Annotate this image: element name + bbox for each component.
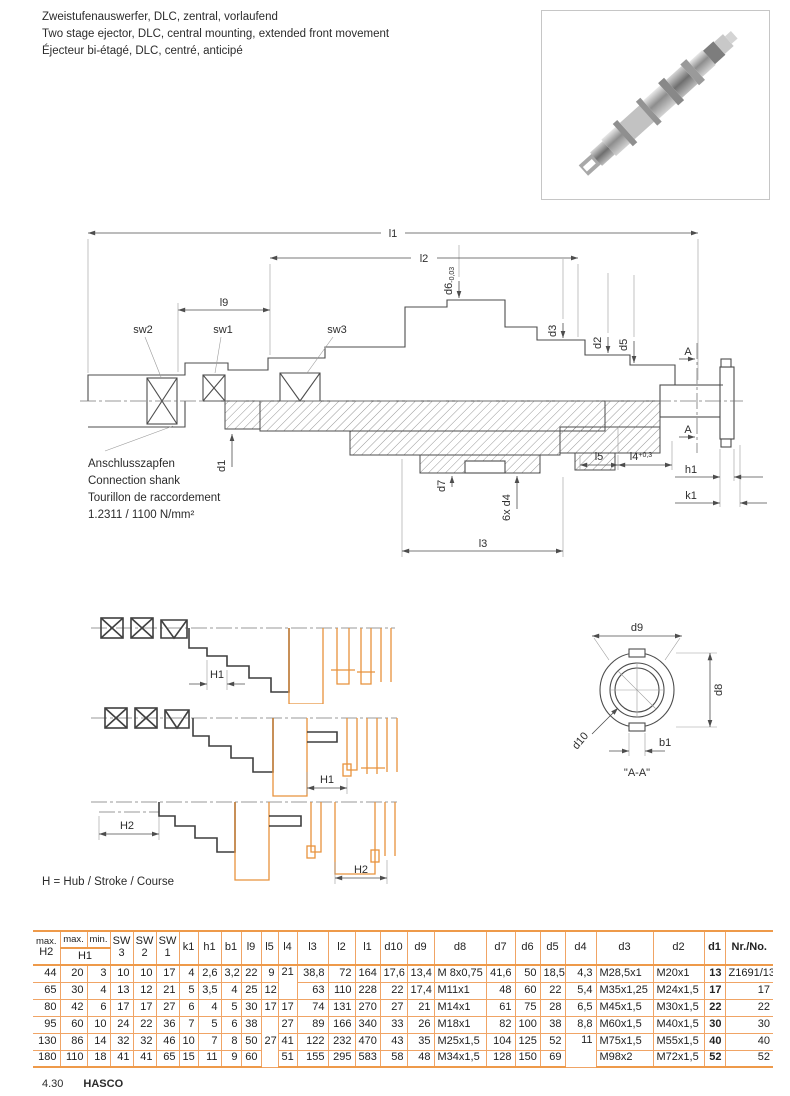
- table-cell: M20x1: [653, 965, 704, 982]
- dim-label-l1: l1: [389, 228, 398, 240]
- table-cell: 128: [486, 1050, 515, 1067]
- table-cell: M18x1: [434, 1016, 486, 1033]
- table-cell: 13: [704, 965, 725, 982]
- table-cell: 38: [540, 1016, 565, 1033]
- dim-label-d8: d8: [713, 684, 725, 696]
- table-cell: 60: [515, 982, 540, 999]
- header-h1: h1: [198, 931, 221, 965]
- table-cell: M72x1,5: [653, 1050, 704, 1067]
- dim-label-b1: b1: [659, 737, 671, 749]
- table-cell: 60: [241, 1050, 261, 1067]
- table-cell: 30: [241, 999, 261, 1016]
- key-tab-top: [629, 649, 645, 657]
- table-cell: 3: [87, 965, 110, 982]
- key-tab-bottom: [629, 723, 645, 731]
- table-cell: 3,2: [221, 965, 241, 982]
- section-right-step: [560, 427, 660, 453]
- table-cell: 30: [725, 1016, 773, 1033]
- table-cell: 65: [156, 1050, 179, 1067]
- table-cell: 11: [565, 1033, 596, 1067]
- dim-label-k1: k1: [685, 490, 697, 502]
- table-cell: 65: [33, 982, 60, 999]
- table-cell: M45x1,5: [596, 999, 653, 1016]
- table-cell: 24: [110, 1016, 133, 1033]
- header-d6: d6: [515, 931, 540, 965]
- table-cell: 95: [33, 1016, 60, 1033]
- section-caption: "A-A": [624, 767, 650, 779]
- stroke-note: H = Hub / Stroke / Course: [42, 876, 174, 888]
- table-cell: 35: [407, 1033, 434, 1050]
- end-plate-tab-top: [721, 359, 731, 367]
- table-cell: 33: [380, 1016, 407, 1033]
- table-cell: 30: [704, 1016, 725, 1033]
- dim-label-d3: d3: [547, 325, 559, 337]
- table-cell: 48: [407, 1050, 434, 1067]
- title-french: Éjecteur bi-étagé, DLC, centré, anticipé: [42, 43, 389, 60]
- table-cell: 27: [261, 1016, 278, 1067]
- table-cell: 50: [241, 1033, 261, 1050]
- table-cell: 17: [278, 999, 297, 1016]
- table-cell: 75: [515, 999, 540, 1016]
- header-sw2: SW2: [133, 931, 156, 965]
- table-cell: 17,4: [407, 982, 434, 999]
- table-cell: Z1691/13: [725, 965, 773, 982]
- header-sw3: SW3: [110, 931, 133, 965]
- stroke3-h2-left-label: H2: [120, 820, 134, 832]
- table-cell: 17: [725, 982, 773, 999]
- table-cell: 21: [278, 965, 297, 999]
- table-cell: 11: [198, 1050, 221, 1067]
- table-cell: 232: [328, 1033, 355, 1050]
- table-cell: 20: [60, 965, 87, 982]
- table-cell: 22: [704, 999, 725, 1016]
- end-plate-tab-bottom: [721, 439, 731, 447]
- table-cell: 5,4: [565, 982, 596, 999]
- table-cell: 74: [297, 999, 328, 1016]
- header-d5: d5: [540, 931, 565, 965]
- table-cell: 25: [241, 982, 261, 999]
- table-cell: 9: [221, 1050, 241, 1067]
- table-cell: 46: [156, 1033, 179, 1050]
- section-sleeve: [260, 401, 605, 431]
- table-cell: 6: [87, 999, 110, 1016]
- shank-note: Anschlusszapfen Connection shank Tourill…: [88, 456, 220, 524]
- table-cell: 21: [156, 982, 179, 999]
- table-cell: 10: [179, 1033, 198, 1050]
- table-cell: 41: [133, 1050, 156, 1067]
- table-cell: 21: [407, 999, 434, 1016]
- header-d9: d9: [407, 931, 434, 965]
- stroke-diagram-1: H1: [85, 612, 405, 704]
- table-cell: 180: [33, 1050, 60, 1067]
- label-sw1: sw1: [213, 324, 233, 336]
- table-row: 180110184141651511960511552955835848M34x…: [33, 1050, 773, 1067]
- spec-table: max.H2max.min.SW3SW2SW1k1h1b1l9l5l4l3l2l…: [33, 930, 773, 1068]
- table-cell: M30x1,5: [653, 999, 704, 1016]
- table-cell: 80: [33, 999, 60, 1016]
- table-cell: 72: [328, 965, 355, 982]
- catalog-page: Zweistufenauswerfer, DLC, zentral, vorla…: [0, 0, 790, 1096]
- dim-label-d2: d2: [592, 337, 604, 349]
- table-cell: 17: [133, 999, 156, 1016]
- dim-label-d7: d7: [436, 480, 448, 492]
- label-sw3: sw3: [327, 324, 347, 336]
- table-row: 1308614323246107850411222324704335M25x1,…: [33, 1033, 773, 1050]
- table-cell: 52: [540, 1033, 565, 1050]
- dim-label-h1: h1: [685, 464, 697, 476]
- header-k1: k1: [179, 931, 198, 965]
- table-cell: 44: [33, 965, 60, 982]
- table-cell: 13,4: [407, 965, 434, 982]
- header-h1: H1: [60, 948, 110, 965]
- brand-logo: HASCO: [83, 1078, 123, 1090]
- table-cell: 41: [278, 1033, 297, 1050]
- section-collar: [225, 401, 260, 429]
- stroke-diagram-2: H1: [85, 702, 405, 798]
- table-cell: M34x1,5: [434, 1050, 486, 1067]
- table-cell: 100: [515, 1016, 540, 1033]
- table-cell: 48: [486, 982, 515, 999]
- table-cell: 12: [133, 982, 156, 999]
- table-cell: 38: [241, 1016, 261, 1033]
- table-cell: 2,6: [198, 965, 221, 982]
- screw-pocket: [465, 461, 505, 473]
- table-cell: 18,5: [540, 965, 565, 982]
- table-cell: 27: [380, 999, 407, 1016]
- section-view-aa: d9 d8 d10 b1 "A-A": [562, 608, 772, 783]
- table-cell: 27: [156, 999, 179, 1016]
- table-cell: 89: [297, 1016, 328, 1033]
- table-row: 956010242236756382727891663403326M18x182…: [33, 1016, 773, 1033]
- stroke1-h1-label: H1: [210, 669, 224, 681]
- table-cell: 4: [198, 999, 221, 1016]
- table-cell: 12: [261, 982, 278, 999]
- table-cell: 28: [540, 999, 565, 1016]
- header-h2: max.H2: [33, 931, 60, 965]
- table-cell: 6: [221, 1016, 241, 1033]
- table-cell: M14x1: [434, 999, 486, 1016]
- table-cell: 17,6: [380, 965, 407, 982]
- dim-label-l9: l9: [220, 297, 229, 309]
- table-cell: 270: [355, 999, 380, 1016]
- page-number: 4.30: [42, 1078, 63, 1090]
- table-cell: 122: [297, 1033, 328, 1050]
- table-cell: 22: [380, 982, 407, 999]
- table-cell: 58: [380, 1050, 407, 1067]
- stroke3-h2-right-label: H2: [354, 864, 368, 876]
- table-cell: 166: [328, 1016, 355, 1033]
- header-d8: d8: [434, 931, 486, 965]
- table-cell: 52: [704, 1050, 725, 1067]
- section-mark-a-top: A: [684, 346, 692, 358]
- table-cell: 26: [407, 1016, 434, 1033]
- table-cell: 41,6: [486, 965, 515, 982]
- table-cell: 22: [241, 965, 261, 982]
- table-cell: 5: [221, 999, 241, 1016]
- header-h1-max: max.: [60, 931, 87, 948]
- table-cell: 32: [110, 1033, 133, 1050]
- header-b1: b1: [221, 931, 241, 965]
- table-cell: 38,8: [297, 965, 328, 982]
- table-cell: 3,5: [198, 982, 221, 999]
- table-cell: 40: [704, 1033, 725, 1050]
- header-h1-min: min.: [87, 931, 110, 948]
- table-row: 80426171727645301717741312702721M14x1617…: [33, 999, 773, 1016]
- table-cell: 69: [540, 1050, 565, 1067]
- table-cell: 63: [297, 982, 328, 999]
- table-cell: 32: [133, 1033, 156, 1050]
- table-cell: 6: [179, 999, 198, 1016]
- header-l5: l5: [261, 931, 278, 965]
- title-english: Two stage ejector, DLC, central mounting…: [42, 26, 389, 43]
- header-l9: l9: [241, 931, 261, 965]
- table-cell: 4,3: [565, 965, 596, 982]
- table-cell: 50: [515, 965, 540, 982]
- table-cell: 52: [725, 1050, 773, 1067]
- table-cell: M24x1,5: [653, 982, 704, 999]
- table-cell: M11x1: [434, 982, 486, 999]
- section-mark-a-bottom: A: [684, 424, 692, 436]
- table-cell: 295: [328, 1050, 355, 1067]
- shank-line-material: 1.2311 / 1100 N/mm²: [88, 507, 220, 524]
- table-cell: 86: [60, 1033, 87, 1050]
- table-cell: 150: [515, 1050, 540, 1067]
- table-cell: 17: [261, 999, 278, 1016]
- table-row: 4420310101742,63,22292138,87216417,613,4…: [33, 965, 773, 982]
- stroke2-h1-label: H1: [320, 774, 334, 786]
- table-row: 6530413122153,542512631102282217,4M11x14…: [33, 982, 773, 999]
- header-d2: d2: [653, 931, 704, 965]
- table-cell: 14: [87, 1033, 110, 1050]
- product-photo: [541, 10, 770, 200]
- sw3-flat: [280, 373, 320, 401]
- table-cell: 5: [179, 982, 198, 999]
- header-l4: l4: [278, 931, 297, 965]
- table-cell: 22: [540, 982, 565, 999]
- header-d7: d7: [486, 931, 515, 965]
- table-cell: 131: [328, 999, 355, 1016]
- table-cell: 104: [486, 1033, 515, 1050]
- table-cell: 7: [198, 1033, 221, 1050]
- page-title: Zweistufenauswerfer, DLC, zentral, vorla…: [42, 9, 389, 60]
- table-cell: 15: [179, 1050, 198, 1067]
- page-footer: 4.30HASCO: [42, 1078, 123, 1090]
- table-cell: 5: [198, 1016, 221, 1033]
- dim-label-l4: l4+0,3: [630, 451, 652, 463]
- table-cell: M 8x0,75: [434, 965, 486, 982]
- table-cell: 36: [156, 1016, 179, 1033]
- table-cell: 40: [725, 1033, 773, 1050]
- table-cell: 583: [355, 1050, 380, 1067]
- table-cell: 60: [60, 1016, 87, 1033]
- table-cell: 61: [486, 999, 515, 1016]
- shank-line-de: Anschlusszapfen: [88, 456, 220, 473]
- table-cell: 4: [179, 965, 198, 982]
- label-sw2: sw2: [133, 324, 153, 336]
- table-cell: 10: [133, 965, 156, 982]
- table-cell: 22: [725, 999, 773, 1016]
- table-cell: 7: [179, 1016, 198, 1033]
- header-l1: l1: [355, 931, 380, 965]
- table-header: max.H2max.min.SW3SW2SW1k1h1b1l9l5l4l3l2l…: [33, 931, 773, 965]
- table-cell: 125: [515, 1033, 540, 1050]
- table-cell: 82: [486, 1016, 515, 1033]
- table-cell: 43: [380, 1033, 407, 1050]
- dim-label-l3: l3: [479, 538, 488, 550]
- table-cell: 4: [87, 982, 110, 999]
- table-cell: M60x1,5: [596, 1016, 653, 1033]
- dim-label-l2: l2: [420, 253, 429, 265]
- table-cell: 340: [355, 1016, 380, 1033]
- dim-label-6xd4: 6x d4: [501, 494, 513, 521]
- table-cell: 470: [355, 1033, 380, 1050]
- header-d3: d3: [596, 931, 653, 965]
- table-cell: M75x1,5: [596, 1033, 653, 1050]
- table-cell: 10: [87, 1016, 110, 1033]
- table-cell: 51: [278, 1050, 297, 1067]
- table-cell: 130: [33, 1033, 60, 1050]
- table-cell: M35x1,25: [596, 982, 653, 999]
- header-nr: Nr./No.: [725, 931, 773, 965]
- table-cell: M55x1,5: [653, 1033, 704, 1050]
- section-plate: [350, 431, 560, 455]
- table-cell: 228: [355, 982, 380, 999]
- table-cell: 30: [60, 982, 87, 999]
- table-cell: 41: [110, 1050, 133, 1067]
- shank-line-fr: Tourillon de raccordement: [88, 490, 220, 507]
- header-d10: d10: [380, 931, 407, 965]
- table-cell: 17: [704, 982, 725, 999]
- table-cell: M98x2: [596, 1050, 653, 1067]
- table-cell: 10: [110, 965, 133, 982]
- dim-label-d5: d5: [618, 339, 630, 351]
- header-l3: l3: [297, 931, 328, 965]
- table-cell: 13: [110, 982, 133, 999]
- table-cell: M40x1,5: [653, 1016, 704, 1033]
- table-cell: 18: [87, 1050, 110, 1067]
- table-cell: 17: [110, 999, 133, 1016]
- stroke-diagram-3: H2 H2: [85, 788, 405, 888]
- table-cell: 27: [278, 1016, 297, 1033]
- dim-label-l5: l5: [595, 451, 604, 463]
- header-d1: d1: [704, 931, 725, 965]
- end-plate: [720, 367, 734, 439]
- shank-line-en: Connection shank: [88, 473, 220, 490]
- table-cell: 8,8: [565, 1016, 596, 1033]
- table-cell: M25x1,5: [434, 1033, 486, 1050]
- table-cell: 22: [133, 1016, 156, 1033]
- ejector-photo-illustration: [542, 11, 769, 199]
- title-german: Zweistufenauswerfer, DLC, zentral, vorla…: [42, 9, 389, 26]
- table-cell: 110: [60, 1050, 87, 1067]
- table-cell: 155: [297, 1050, 328, 1067]
- header-l2: l2: [328, 931, 355, 965]
- table-cell: 164: [355, 965, 380, 982]
- table-cell: 9: [261, 965, 278, 982]
- section-right-collar: [605, 401, 660, 427]
- dim-label-d10: d10: [570, 730, 591, 752]
- table-cell: 8: [221, 1033, 241, 1050]
- dim-label-d6: d6-0,03: [443, 267, 456, 295]
- table-cell: 6,5: [565, 999, 596, 1016]
- table-cell: 17: [156, 965, 179, 982]
- dim-label-d9: d9: [631, 622, 643, 634]
- table-cell: 4: [221, 982, 241, 999]
- table-cell: M28,5x1: [596, 965, 653, 982]
- table-cell: 42: [60, 999, 87, 1016]
- table-cell: 110: [328, 982, 355, 999]
- header-sw1: SW1: [156, 931, 179, 965]
- header-d4: d4: [565, 931, 596, 965]
